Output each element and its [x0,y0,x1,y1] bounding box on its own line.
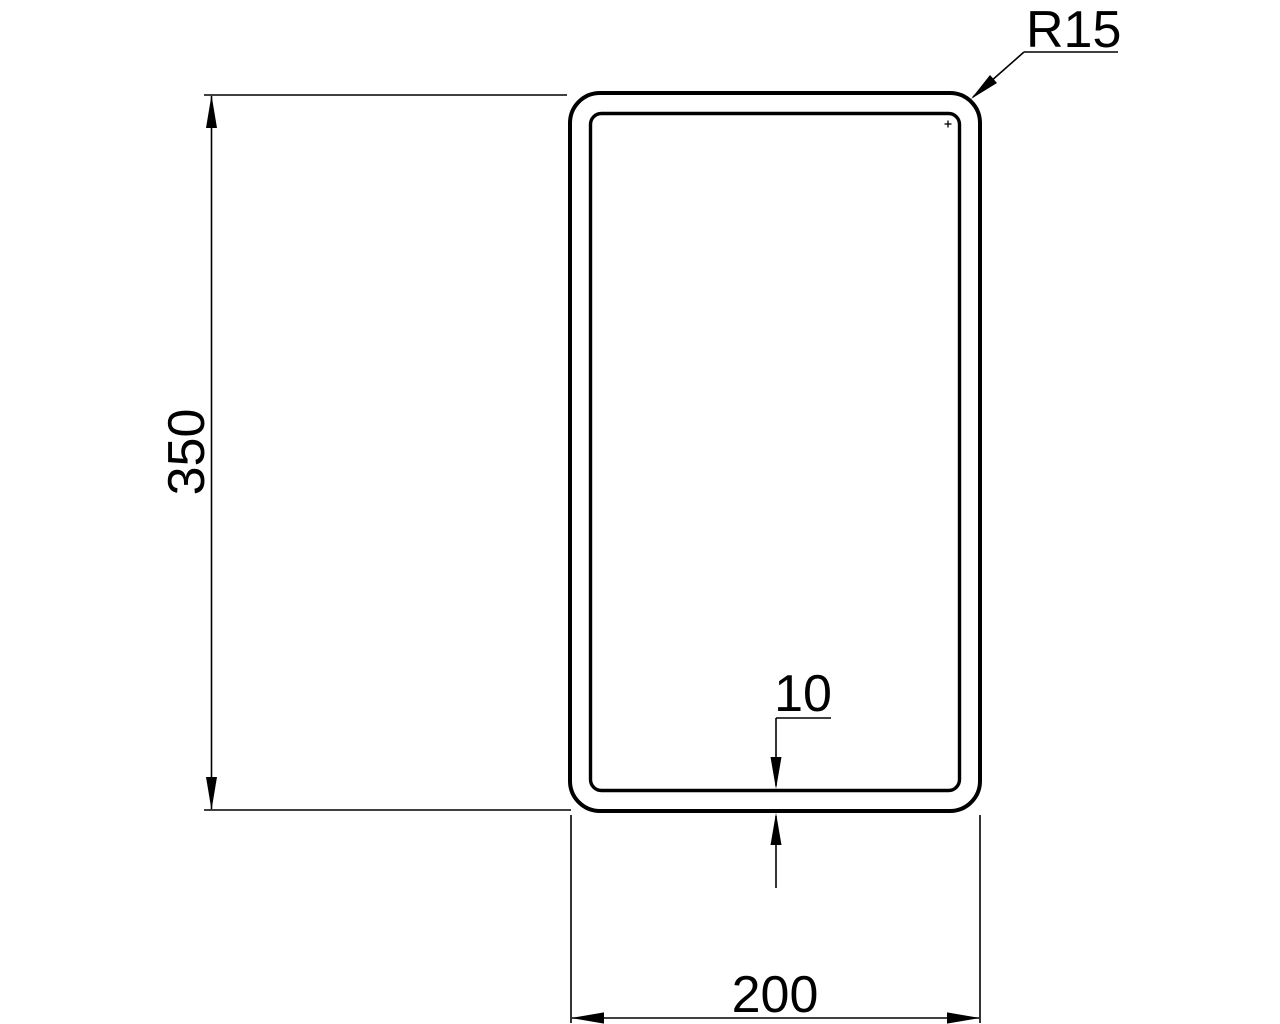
arrowhead-up-icon [771,813,782,845]
radius-callout-label: R15 [1026,1,1121,59]
radius-center-mark [945,121,952,128]
wall-thickness-dimension: 10 [771,665,832,888]
height-dimension: 350 [158,95,571,810]
drawing-canvas: 350 200 10 R15 [0,0,1280,1024]
arrowhead-down-icon [206,777,217,810]
corner-radius-callout: R15 [971,1,1121,99]
arrowhead-diagonal-icon [971,75,997,99]
arrowhead-right-icon [947,1012,980,1023]
width-dimension-label: 200 [732,966,819,1024]
arrowhead-up-icon [206,95,217,128]
arrowhead-down-icon [771,757,782,789]
height-dimension-label: 350 [158,409,216,496]
technical-drawing: 350 200 10 R15 [0,0,1280,1024]
wall-thickness-label: 10 [774,665,832,723]
arrowhead-left-icon [571,1012,604,1023]
